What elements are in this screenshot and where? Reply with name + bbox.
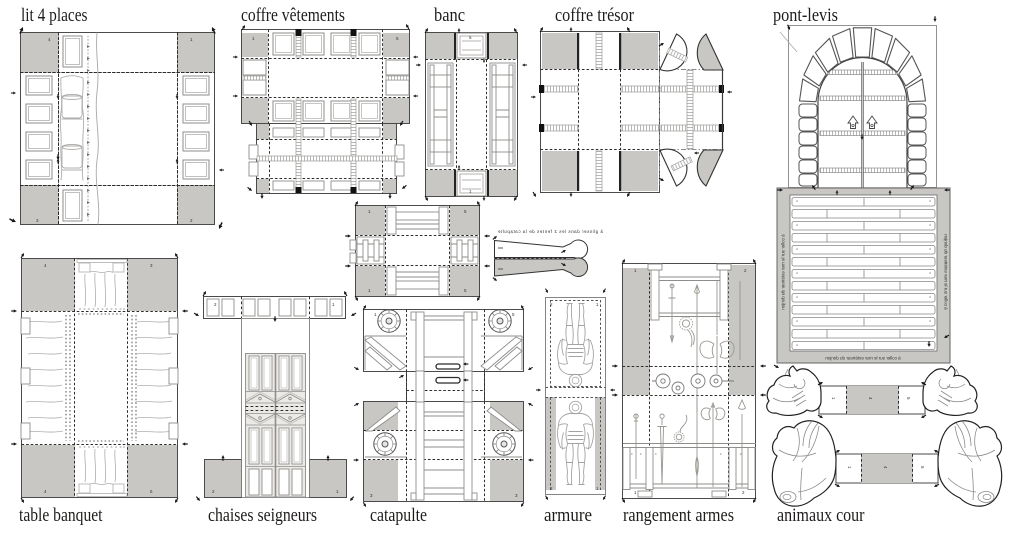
- svg-text:à coller sur le mur extérieur: à coller sur le mur extérieur du donjon: [781, 234, 786, 310]
- svg-text:animaux cour: animaux cour: [777, 505, 865, 526]
- svg-text:chaises seigneurs: chaises seigneurs: [208, 505, 317, 526]
- svg-text:coffre vêtements: coffre vêtements: [241, 5, 345, 26]
- svg-text:coffre trésor: coffre trésor: [555, 5, 635, 26]
- svg-text:à coller sur le mur extérieur: à coller sur le mur extérieur du donjon: [944, 234, 949, 310]
- svg-text:armure: armure: [544, 505, 592, 526]
- svg-text:catapulte: catapulte: [370, 505, 427, 526]
- svg-text:lit 4 places: lit 4 places: [21, 5, 88, 26]
- svg-text:banc: banc: [434, 5, 465, 26]
- svg-text:pont-levis: pont-levis: [773, 5, 838, 26]
- svg-text:table banquet: table banquet: [19, 505, 103, 526]
- svg-text:rangement armes: rangement armes: [623, 505, 734, 526]
- svg-text:à coller sur le mur extérieur: à coller sur le mur extérieur du donjon: [825, 356, 901, 361]
- svg-text:à glisser dans les 2 fentes de: à glisser dans les 2 fentes de la catapu…: [498, 229, 603, 234]
